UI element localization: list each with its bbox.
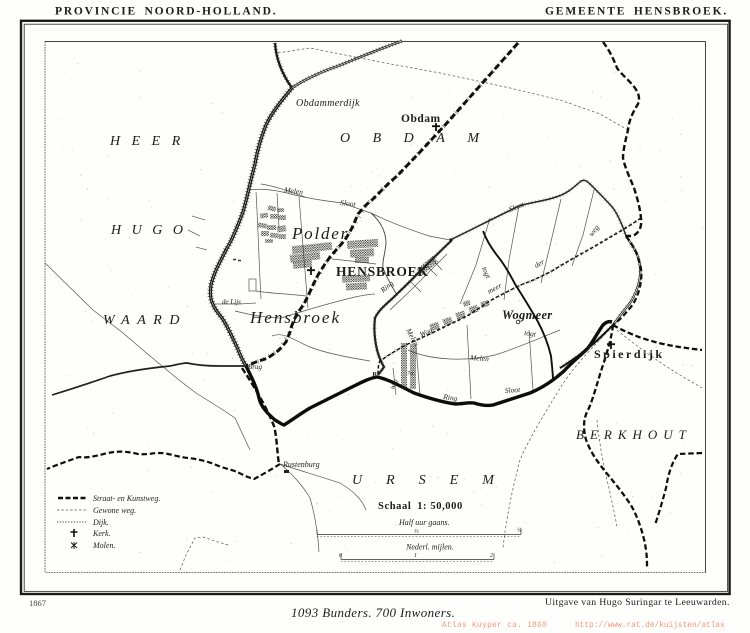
svg-text:Wogmeer: Wogmeer bbox=[502, 308, 552, 322]
svg-text:GEMEENTE HENSBROEK.: GEMEENTE HENSBROEK. bbox=[545, 6, 728, 18]
svg-text:Melen: Melen bbox=[469, 353, 490, 363]
svg-text:1: 1 bbox=[414, 553, 417, 559]
svg-text:Obdammerdijk: Obdammerdijk bbox=[296, 98, 360, 109]
svg-text:B: B bbox=[371, 371, 377, 379]
svg-text:Polder: Polder bbox=[291, 224, 349, 243]
svg-text:Kerk.: Kerk. bbox=[92, 529, 111, 538]
svg-text:HUGO: HUGO bbox=[110, 223, 193, 238]
svg-text:Schaal 1: 50,000: Schaal 1: 50,000 bbox=[378, 501, 463, 512]
svg-text:OBDAM: OBDAM bbox=[340, 131, 502, 146]
svg-text:7a.: 7a. bbox=[407, 370, 416, 377]
svg-text:Nederl. mijlen.: Nederl. mijlen. bbox=[405, 543, 454, 552]
svg-text:Half uur gaans.: Half uur gaans. bbox=[398, 518, 449, 527]
svg-text:1093 Bunders. 700 Inwoners.: 1093 Bunders. 700 Inwoners. bbox=[291, 605, 455, 620]
svg-text:Brug: Brug bbox=[248, 363, 263, 371]
svg-text:Sloot: Sloot bbox=[505, 385, 522, 395]
svg-text:URSEM: URSEM bbox=[352, 473, 518, 488]
svg-text:de Lijs: de Lijs bbox=[222, 298, 241, 306]
svg-text:Sloot: Sloot bbox=[340, 198, 357, 209]
svg-text:⅓: ⅓ bbox=[414, 529, 419, 535]
svg-text:PROVINCIE NOORD-HOLLAND.: PROVINCIE NOORD-HOLLAND. bbox=[55, 6, 277, 18]
svg-text:0: 0 bbox=[339, 553, 342, 559]
svg-text:Molen.: Molen. bbox=[92, 541, 115, 550]
svg-text:http://www.rat.de/kuijsten/atl: http://www.rat.de/kuijsten/atlas bbox=[575, 622, 725, 630]
svg-text:Rustenburg: Rustenburg bbox=[282, 460, 320, 469]
svg-text:2: 2 bbox=[490, 553, 493, 559]
svg-text:togt: togt bbox=[524, 328, 538, 339]
svg-text:Spierdijk: Spierdijk bbox=[594, 347, 665, 361]
svg-text:WAARD: WAARD bbox=[103, 313, 187, 328]
svg-text:Dijk.: Dijk. bbox=[92, 518, 109, 527]
svg-text:Hensbroek: Hensbroek bbox=[249, 308, 341, 327]
svg-text:Uitgave van Hugo Suringar te: Uitgave van Hugo Suringar te Leeuwarden. bbox=[545, 597, 730, 608]
svg-text:BERKHOUT: BERKHOUT bbox=[576, 427, 692, 442]
svg-text:Obdam: Obdam bbox=[401, 113, 441, 125]
svg-text:HEER: HEER bbox=[109, 134, 192, 149]
svg-text:¼: ¼ bbox=[517, 528, 522, 534]
svg-text:HENSBROEK: HENSBROEK bbox=[336, 264, 429, 279]
svg-text:Atlas Kuyper ca. 1860: Atlas Kuyper ca. 1860 bbox=[442, 622, 547, 630]
svg-text:Gewone weg.: Gewone weg. bbox=[93, 506, 136, 515]
svg-text:1867: 1867 bbox=[29, 598, 46, 608]
svg-text:Straat- en Kunstweg.: Straat- en Kunstweg. bbox=[93, 494, 160, 503]
